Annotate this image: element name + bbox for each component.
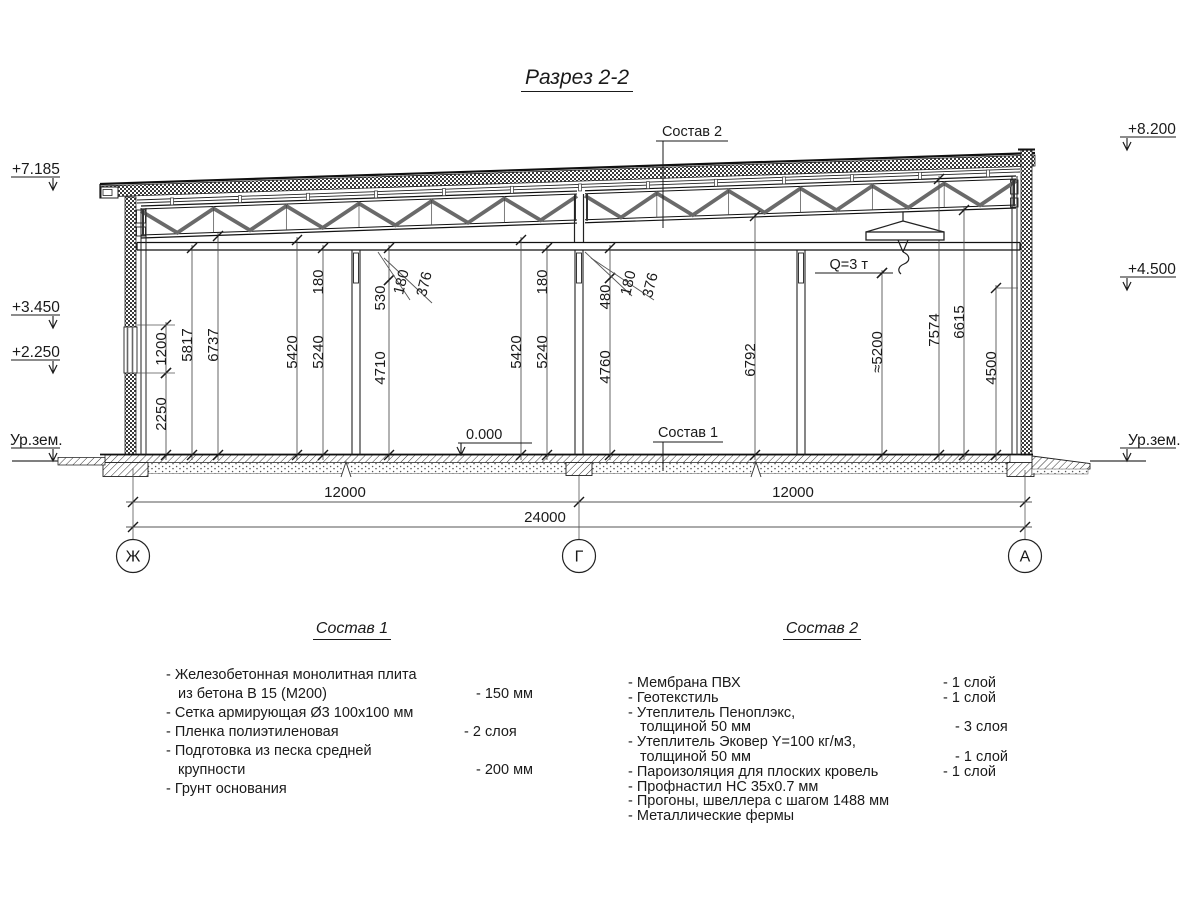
dim-5240-left: 5240 [310,335,327,368]
drawing-title: Разрез 2-2 [467,66,687,90]
axis-zh: Ж [126,549,141,566]
drawing-sheet: Разрез 2-2 [0,0,1200,900]
dim-4500: 4500 [983,351,1000,384]
dim-376-leader-left: 376 [413,270,436,298]
list-item: - Геотекстиль- 1 слой [628,691,1016,706]
list-item: - Прогоны, швеллера с шагом 1488 мм [628,794,1016,809]
list-item: - Пароизоляция для плоских кровель- 1 сл… [628,765,1016,780]
elev-left-3450: +3.450 [12,299,60,316]
sostav1-heading: Состав 1 [166,620,538,638]
dim-7574: 7574 [926,313,943,346]
list-item: - Мембрана ПВХ- 1 слой [628,676,1016,691]
dim-4760: 4760 [597,350,614,383]
dim-4710: 4710 [372,351,389,384]
left-wall-opening [124,327,137,373]
footing-left [103,463,148,477]
list-item: - Металлические фермы [628,809,1016,824]
hook-icon [899,252,909,274]
dim-12000-left: 12000 [324,484,366,501]
dim-180-leader-left: 180 [390,268,413,296]
vertical-dimension-texts: 1200 2250 5817 6737 5420 5240 180 530 47… [153,268,1000,431]
dim-6792: 6792 [742,343,759,376]
elev-left-ground: Ур.зем. [10,432,63,449]
list-item: крупности- 200 мм [166,761,538,780]
zero-level-mark: 0.000 [466,427,502,443]
footing-right [1007,463,1034,477]
monorail-hoist [866,232,944,274]
elev-right-4500: +4.500 [1128,261,1176,278]
dim-480: 480 [597,284,614,309]
dim-376-leader-right: 376 [639,271,662,299]
dim-2250: 2250 [153,397,170,430]
list-item: из бетона В 15 (М200)- 150 мм [166,685,538,704]
axis-g: Г [575,549,584,566]
dim-5240-mid: 5240 [534,335,551,368]
list-item: - Профнастил НС 35x0.7 мм [628,780,1016,795]
horizontal-dimension-texts: 12000 12000 24000 [324,484,814,526]
dim-530: 530 [372,285,389,310]
list-item: толщиной 50 мм- 3 слоя [628,720,1016,735]
callout-sostav1: Состав 1 [658,425,718,441]
elev-left-7185: +7.185 [12,161,60,178]
list-item: толщиной 50 мм- 1 слой [628,750,1016,765]
dim-180-leader-right: 180 [617,269,640,297]
sostav1-list: Состав 1 - Железобетонная монолитная пли… [166,620,538,799]
list-item: - Железобетонная монолитная плита [166,666,538,685]
dim-6737: 6737 [205,328,222,361]
callout-sostav2: Состав 2 [662,124,722,140]
crane-capacity-label: Q=3 т [830,257,869,273]
dim-6615: 6615 [951,305,968,338]
dim-5420-left: 5420 [284,335,301,368]
footing-middle [566,463,592,476]
roof-edge-cap [101,187,118,198]
dim-12000-right: 12000 [772,484,814,501]
axis-bubbles: Ж Г А [117,540,1042,573]
dim-180-mid: 180 [534,269,551,294]
list-item: - Пленка полиэтиленовая- 2 слоя [166,723,538,742]
list-item: - Утеплитель Эковер Y=100 кг/м3, [628,735,1016,750]
dim-5817: 5817 [179,328,196,361]
elev-right-8200: +8.200 [1128,121,1176,138]
list-item: - Сетка армирующая Ø3 100x100 мм [166,704,538,723]
elev-left-2250: +2.250 [12,344,60,361]
list-item: - Подготовка из песка средней [166,742,538,761]
dim-1200: 1200 [153,332,170,365]
dim-180-left: 180 [310,269,327,294]
dim-24000: 24000 [524,509,566,526]
dim-5200: ≈5200 [869,331,886,373]
dim-5420-mid: 5420 [508,335,525,368]
elev-right-ground: Ур.зем. [1128,432,1181,449]
axis-a: А [1020,549,1031,566]
list-item: - Утеплитель Пеноплэкс, [628,706,1016,721]
sostav2-list: Состав 2 - Мембрана ПВХ- 1 слой - Геотек… [628,620,1016,824]
list-item: - Грунт основания [166,780,538,799]
left-apron [58,458,105,466]
sostav2-heading: Состав 2 [628,620,1016,638]
